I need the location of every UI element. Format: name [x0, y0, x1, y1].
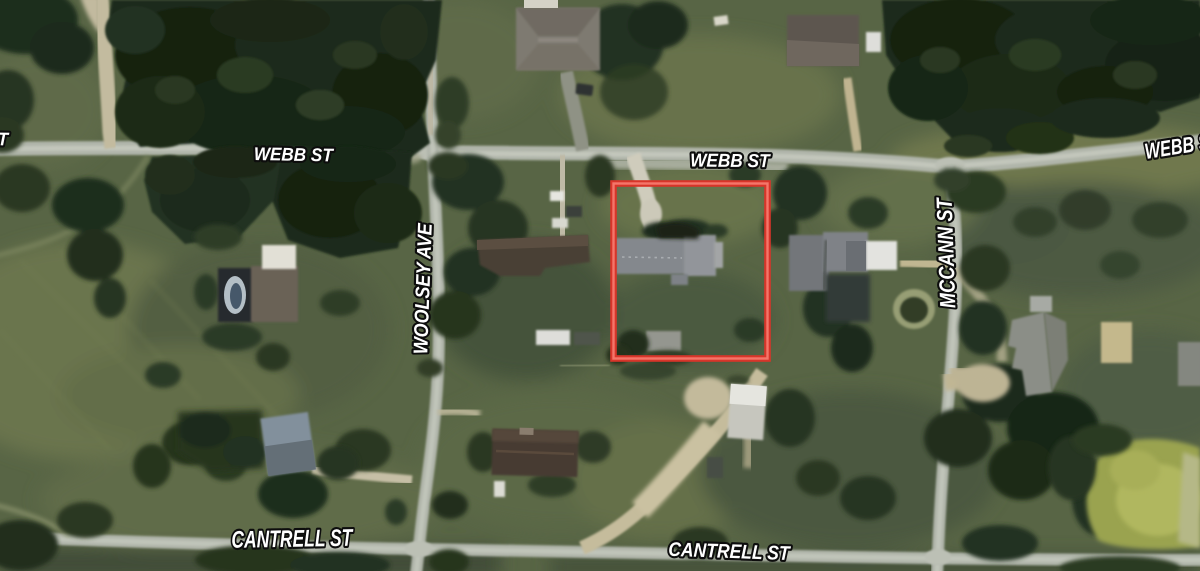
svg-text:CANTRELL ST: CANTRELL ST: [668, 539, 792, 565]
svg-text:WEBB ST: WEBB ST: [254, 143, 335, 165]
svg-text:MCCANN ST: MCCANN ST: [932, 197, 961, 309]
svg-text:WEBB ST: WEBB ST: [690, 150, 771, 172]
svg-text:WOOLSEY AVE: WOOLSEY AVE: [410, 222, 437, 354]
svg-text:CANTRELL ST: CANTRELL ST: [231, 525, 354, 554]
